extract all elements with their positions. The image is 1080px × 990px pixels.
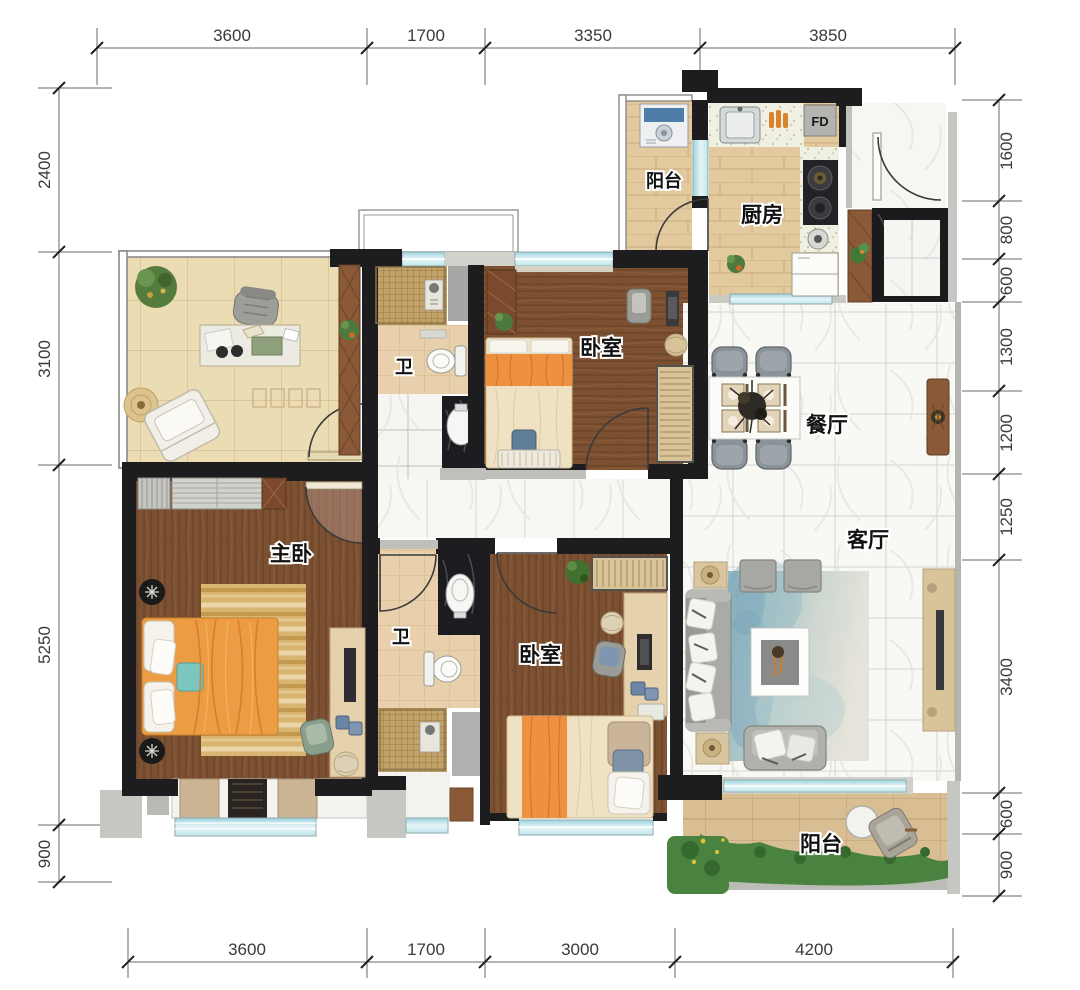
svg-text:3100: 3100 — [35, 340, 54, 378]
svg-text:800: 800 — [997, 216, 1016, 244]
svg-text:卧室: 卧室 — [580, 336, 622, 360]
svg-text:5250: 5250 — [35, 626, 54, 664]
svg-text:3850: 3850 — [809, 26, 847, 45]
svg-text:阳台: 阳台 — [646, 170, 682, 191]
svg-text:阳台: 阳台 — [800, 832, 842, 856]
svg-text:1700: 1700 — [407, 940, 445, 959]
svg-text:3600: 3600 — [213, 26, 251, 45]
svg-text:4200: 4200 — [795, 940, 833, 959]
svg-text:FD: FD — [811, 114, 828, 129]
svg-text:1250: 1250 — [997, 498, 1016, 536]
svg-text:厨房: 厨房 — [741, 203, 783, 227]
svg-text:3000: 3000 — [561, 940, 599, 959]
svg-text:客厅: 客厅 — [847, 528, 889, 552]
svg-text:1300: 1300 — [997, 328, 1016, 366]
svg-text:3600: 3600 — [228, 940, 266, 959]
svg-text:3350: 3350 — [574, 26, 612, 45]
svg-text:1200: 1200 — [997, 414, 1016, 452]
svg-text:3400: 3400 — [997, 658, 1016, 696]
svg-text:600: 600 — [997, 800, 1016, 828]
svg-text:餐厅: 餐厅 — [806, 413, 848, 437]
svg-text:1600: 1600 — [997, 132, 1016, 170]
svg-text:卫: 卫 — [395, 357, 413, 377]
svg-text:卧室: 卧室 — [519, 643, 561, 667]
svg-text:2400: 2400 — [35, 151, 54, 189]
svg-text:卫: 卫 — [392, 627, 410, 647]
svg-text:900: 900 — [997, 851, 1016, 879]
svg-text:1700: 1700 — [407, 26, 445, 45]
svg-text:600: 600 — [997, 267, 1016, 295]
svg-text:主卧: 主卧 — [270, 543, 312, 566]
svg-text:900: 900 — [35, 840, 54, 868]
